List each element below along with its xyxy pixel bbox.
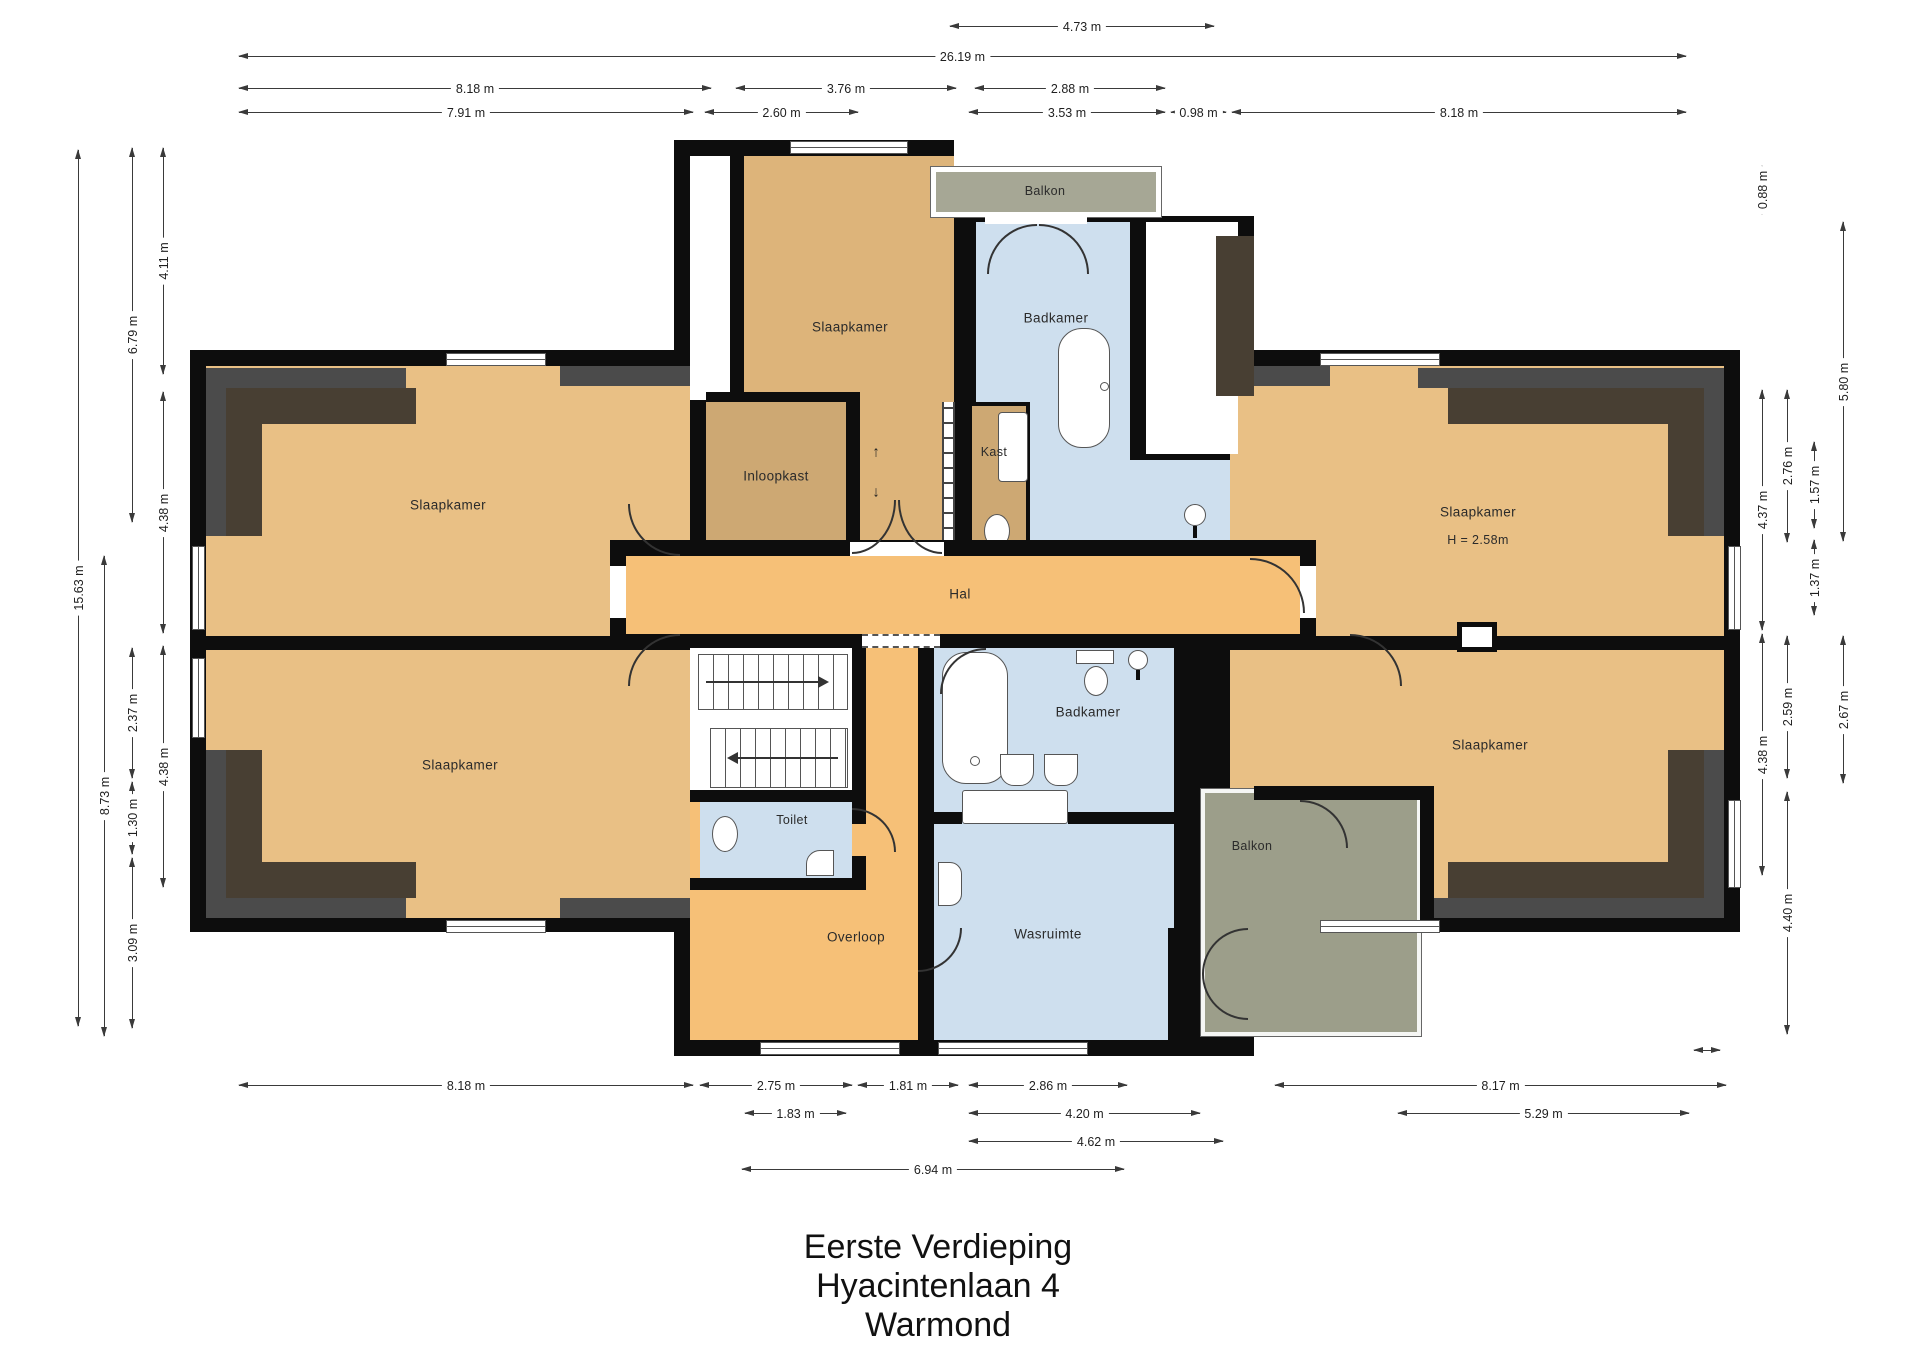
dimension-label: 4.38 m (1756, 730, 1770, 778)
down-arrow-icon: ↓ (872, 484, 880, 501)
window (1728, 800, 1741, 888)
dimension-label: 5.80 m (1837, 357, 1851, 405)
hal-left-opening (610, 566, 626, 618)
toilet (712, 816, 738, 852)
dimension-label: 2.86 m (1024, 1079, 1072, 1093)
label-badkamer-top: Badkamer (1024, 311, 1089, 326)
kast-hatch (942, 402, 955, 542)
dimension-line: 6.94 m (742, 1169, 1124, 1170)
toilet (1084, 666, 1108, 696)
dimension-label: 15.63 m (72, 560, 86, 615)
roof-band (206, 750, 226, 918)
dimension-label: 3.53 m (1043, 106, 1091, 120)
dimension-label: 4.62 m (1072, 1135, 1120, 1149)
dimension-line: 8.18 m (239, 1085, 693, 1086)
toilet-top-wall (690, 790, 866, 802)
dimension-label: 2.76 m (1781, 442, 1795, 490)
bathtub-faucet (1100, 382, 1109, 391)
dimension-line: 3.76 m (736, 88, 956, 89)
label-hal: Hal (949, 587, 970, 602)
dimension-line (1694, 1050, 1720, 1051)
dimension-label: 2.37 m (126, 689, 140, 737)
dimension-line: 2.37 m (132, 648, 133, 778)
dimension-label: 1.83 m (771, 1107, 819, 1121)
dimension-line: 2.59 m (1787, 636, 1788, 778)
sink-stem (1136, 670, 1140, 680)
dimension-line: 1.81 m (858, 1085, 958, 1086)
dimension-label: 4.37 m (1756, 486, 1770, 534)
window (192, 658, 205, 738)
balkon-top-wall (1254, 786, 1420, 800)
dimension-line: 5.80 m (1843, 222, 1844, 541)
dimension-line: 8.18 m (1232, 112, 1686, 113)
dimension-line: 5.29 m (1398, 1113, 1689, 1114)
roof-band (1704, 368, 1724, 536)
roof-band (1418, 898, 1724, 918)
dimension-line: 3.09 m (132, 858, 133, 1028)
window (790, 141, 908, 154)
dimension-label: 2.75 m (752, 1079, 800, 1093)
label-slaapkamer-left-top: Slaapkamer (410, 498, 486, 513)
dimension-line: 1.83 m (745, 1113, 846, 1114)
dimension-label: 1.81 m (884, 1079, 932, 1093)
roof-pillar (1216, 236, 1254, 396)
balkon-door-opening (985, 214, 1087, 224)
niche (1457, 622, 1497, 652)
roof-band (1448, 862, 1704, 898)
window (1320, 920, 1440, 933)
dimension-line: 8.18 m (239, 88, 711, 89)
dimension-line: 4.62 m (969, 1141, 1223, 1142)
roof-void (690, 156, 730, 400)
sink (1000, 754, 1034, 786)
dimension-line: 15.63 m (78, 150, 79, 1026)
dimension-line: 4.38 m (163, 646, 164, 887)
dimension-label: 2.59 m (1781, 683, 1795, 731)
dimension-line: 0.88 m (1762, 166, 1763, 214)
dimension-label: 6.94 m (909, 1163, 957, 1177)
label-slaapkamer-center: Slaapkamer (812, 320, 888, 335)
label-slaapkamer-right-bottom: Slaapkamer (1452, 738, 1528, 753)
window (1728, 546, 1741, 630)
dimension-line: 1.30 m (132, 782, 133, 854)
dimension-label: 8.73 m (98, 772, 112, 820)
stair-arrow-head (818, 676, 829, 688)
dimension-label: 7.91 m (442, 106, 490, 120)
bath-was-wall (1068, 812, 1174, 824)
title-city: Warmond (804, 1306, 1072, 1345)
dimension-line: 4.40 m (1787, 792, 1788, 1034)
dimension-label: 2.60 m (757, 106, 805, 120)
label-toilet: Toilet (776, 813, 808, 827)
dimension-line: 7.91 m (239, 112, 693, 113)
dimension-label: 0.98 m (1174, 106, 1222, 120)
roof-band (206, 368, 406, 388)
title-address: Hyacintenlaan 4 (804, 1267, 1072, 1306)
roof-band (206, 898, 406, 918)
dimension-line: 3.53 m (969, 112, 1165, 113)
dimension-label: 2.88 m (1046, 82, 1094, 96)
label-balkon-bottom: Balkon (1232, 839, 1273, 853)
toilet-tank (1076, 650, 1114, 664)
dimension-line: 2.88 m (975, 88, 1165, 89)
dimension-line: 4.73 m (950, 26, 1214, 27)
title-floor: Eerste Verdieping (804, 1228, 1072, 1267)
toilet-bottom-wall (690, 878, 866, 890)
up-arrow-icon: ↑ (872, 444, 880, 461)
stair-arrow-line (706, 681, 818, 683)
window (192, 546, 205, 630)
dimension-line: 4.11 m (163, 148, 164, 374)
dimension-label: 4.20 m (1060, 1107, 1108, 1121)
dimension-line: 0.98 m (1171, 112, 1226, 113)
dimension-label: 1.57 m (1808, 461, 1822, 509)
dimension-line: 6.79 m (132, 148, 133, 522)
dimension-label: 3.09 m (126, 919, 140, 967)
dimension-label: 26.19 m (935, 50, 990, 64)
roof-band (1418, 368, 1724, 388)
dimension-label: 6.79 m (126, 311, 140, 359)
label-inloopkast: Inloopkast (743, 469, 809, 484)
dimension-line: 2.86 m (969, 1085, 1127, 1086)
roof-band (1704, 750, 1724, 918)
roof-band (1448, 388, 1704, 424)
dimension-label: 1.30 m (126, 794, 140, 842)
window (446, 353, 546, 366)
counter (962, 790, 1068, 824)
toilet-right-wall (852, 856, 866, 878)
label-slaapkamer-right-top-height: H = 2.58m (1447, 533, 1509, 547)
dimension-label: 4.11 m (157, 237, 171, 284)
roof-band (226, 750, 262, 898)
dimension-line: 26.19 m (239, 56, 1686, 57)
dimension-line: 2.75 m (700, 1085, 852, 1086)
sink (1044, 754, 1078, 786)
window (446, 920, 546, 933)
dimension-line: 4.38 m (163, 392, 164, 633)
dimension-label: 8.18 m (442, 1079, 490, 1093)
pedestal-sink (1184, 504, 1206, 526)
stair-arrow-line (738, 757, 838, 759)
dimension-line: 4.38 m (1762, 634, 1763, 875)
dashed-opening (862, 634, 940, 648)
dimension-line: 8.17 m (1275, 1085, 1726, 1086)
roof-band (1668, 750, 1704, 898)
roof-band (560, 366, 690, 386)
floorplan-canvas: Slaapkamer Slaapkamer Slaapkamer Badkame… (0, 0, 1920, 1358)
sink-stem (1193, 526, 1197, 538)
roof-band (560, 898, 690, 918)
window (1320, 353, 1440, 366)
plan-title: Eerste Verdieping Hyacintenlaan 4 Warmon… (804, 1228, 1072, 1345)
inloopkast-top-wall (706, 392, 860, 402)
dimension-label: 4.38 m (157, 742, 171, 790)
bath-was-wall (934, 812, 962, 824)
roof-band (1668, 388, 1704, 536)
dimension-label: 1.37 m (1808, 553, 1822, 601)
dimension-label: 5.29 m (1519, 1107, 1567, 1121)
stair-arrow-head (727, 752, 738, 764)
dimension-line: 2.76 m (1787, 390, 1788, 542)
dimension-line: 2.60 m (705, 112, 858, 113)
corner-sink (806, 850, 834, 876)
dimension-line: 4.20 m (969, 1113, 1200, 1114)
label-slaapkamer-right-top: Slaapkamer (1440, 505, 1516, 520)
dimension-line: 4.37 m (1762, 390, 1763, 630)
dimension-line: 2.67 m (1843, 636, 1844, 783)
window (760, 1042, 900, 1055)
bathtub-drain (970, 756, 980, 766)
dimension-label: 8.17 m (1476, 1079, 1524, 1093)
dimension-label: 2.67 m (1837, 685, 1851, 733)
laundry-sink (938, 862, 962, 906)
dimension-label: 0.88 m (1756, 166, 1770, 214)
label-overloop: Overloop (827, 930, 885, 945)
stair-right-wall (852, 648, 866, 790)
dimension-label: 3.76 m (822, 82, 870, 96)
label-wasruimte: Wasruimte (1014, 927, 1082, 942)
dimension-label: 4.38 m (157, 488, 171, 536)
dimension-line: 1.57 m (1814, 442, 1815, 528)
dimension-line: 8.73 m (104, 556, 105, 1036)
label-balkon-top: Balkon (1025, 184, 1066, 198)
dimension-label: 4.73 m (1058, 20, 1106, 34)
balkon-right-wall (1420, 786, 1434, 932)
window (938, 1042, 1088, 1055)
label-slaapkamer-left-bottom: Slaapkamer (422, 758, 498, 773)
dimension-label: 8.18 m (451, 82, 499, 96)
roof-band (226, 388, 262, 536)
dimension-line: 1.37 m (1814, 540, 1815, 615)
dimension-label: 8.18 m (1435, 106, 1483, 120)
roof-band (206, 368, 226, 536)
label-badkamer-bottom: Badkamer (1056, 705, 1121, 720)
pedestal-sink (1128, 650, 1148, 670)
dimension-label: 4.40 m (1781, 889, 1795, 937)
label-kast: Kast (981, 445, 1008, 459)
